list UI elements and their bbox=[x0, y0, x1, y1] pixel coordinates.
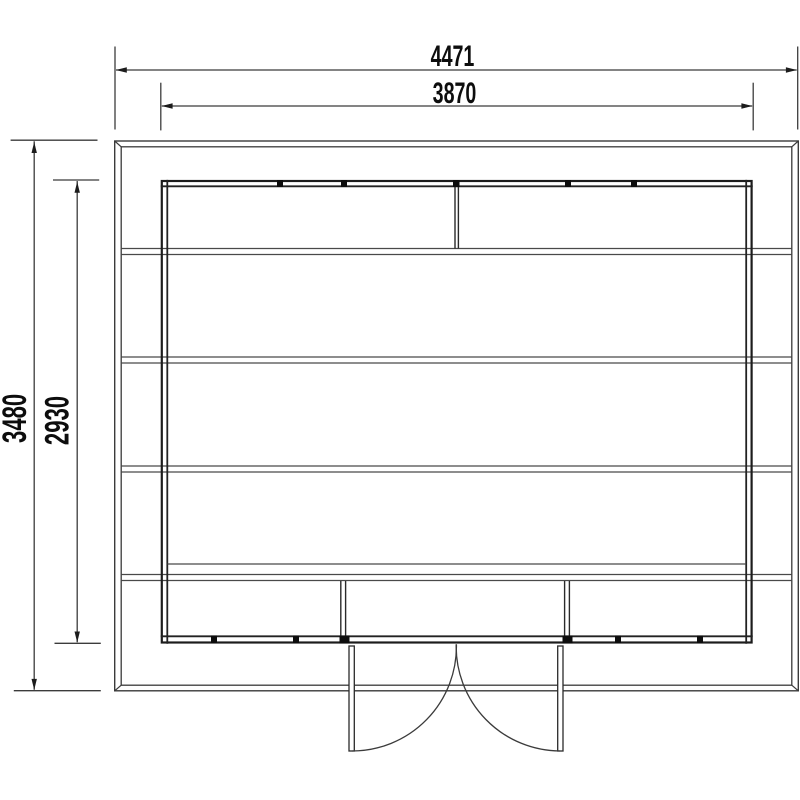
svg-text:3480: 3480 bbox=[0, 394, 34, 443]
svg-text:3870: 3870 bbox=[433, 77, 477, 110]
svg-text:4471: 4471 bbox=[431, 40, 475, 73]
svg-text:2930: 2930 bbox=[39, 396, 77, 445]
